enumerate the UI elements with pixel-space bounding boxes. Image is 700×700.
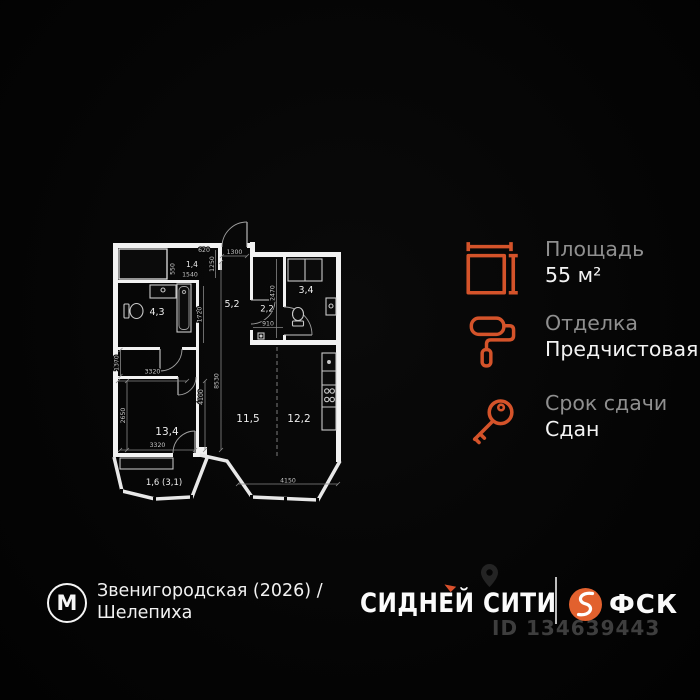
room-label-kitchen: 12,2 [287, 413, 310, 425]
dim-1370: 1370 [114, 355, 121, 371]
paint-roller-icon [462, 312, 524, 372]
area-value: 55 м² [545, 264, 644, 287]
dim-1540: 1540 [182, 272, 198, 279]
dim-2470: 2470 [270, 285, 277, 301]
floor-plan: 620 1300 1250 1540 550 1720 2470 910 137… [100, 195, 350, 530]
metro-icon: М [47, 583, 87, 623]
logo-divider [555, 577, 557, 624]
completion-value: Сдан [545, 418, 667, 441]
metro-stations: Звенигородская (2026) / Шелепиха [97, 581, 323, 624]
dim-910: 910 [262, 321, 274, 328]
dim-4150: 4150 [280, 478, 296, 485]
room-label-living: 11,5 [236, 413, 259, 425]
dim-2650: 2650 [120, 408, 127, 424]
room-label-balcony: 1,6 (3,1) [146, 478, 182, 488]
metro-letter: М [57, 591, 78, 615]
plan-fixtures [119, 249, 336, 430]
location-pin-icon [481, 564, 498, 587]
dim-1250: 1250 [209, 256, 216, 272]
info-item-finishing: Отделка Предчистовая [462, 312, 698, 372]
room-label-bathroom: 4,3 [149, 307, 164, 318]
info-item-completion: Срок сдачи Сдан [462, 392, 667, 452]
room-label-bathroom2: 3,4 [298, 285, 313, 296]
dim-3320-bottom: 3320 [150, 442, 166, 449]
listing-card: 620 1300 1250 1540 550 1720 2470 910 137… [0, 0, 700, 700]
dim-620: 620 [198, 247, 210, 254]
metro-station-line1: Звенигородская (2026) / [97, 581, 323, 603]
fsk-logo-icon [569, 588, 602, 621]
area-label: Площадь [545, 238, 644, 261]
dim-550: 550 [170, 263, 177, 275]
dim-3320-top: 3320 [145, 369, 161, 376]
room-label-wc: 2,2 [260, 305, 274, 315]
balcony-glazing [120, 458, 173, 469]
room-label-bedroom: 13,4 [155, 426, 179, 438]
key-icon [462, 392, 524, 452]
dim-8530: 8530 [214, 373, 221, 389]
area-icon [462, 238, 524, 298]
info-item-area: Площадь 55 м² [462, 238, 644, 298]
dim-1720: 1720 [197, 307, 204, 323]
room-label-corridor: 5,2 [224, 299, 239, 310]
dim-4100: 4100 [198, 389, 205, 405]
developer-name: ФСК [609, 590, 678, 620]
finishing-label: Отделка [545, 312, 698, 335]
project-logo: СИДНЕЙ СИТИ [360, 588, 556, 619]
dim-1300: 1300 [227, 249, 243, 256]
finishing-value: Предчистовая [545, 338, 698, 361]
room-label-hall: 1,4 [186, 260, 198, 269]
completion-label: Срок сдачи [545, 392, 667, 415]
metro-station-line2: Шелепиха [97, 603, 323, 625]
